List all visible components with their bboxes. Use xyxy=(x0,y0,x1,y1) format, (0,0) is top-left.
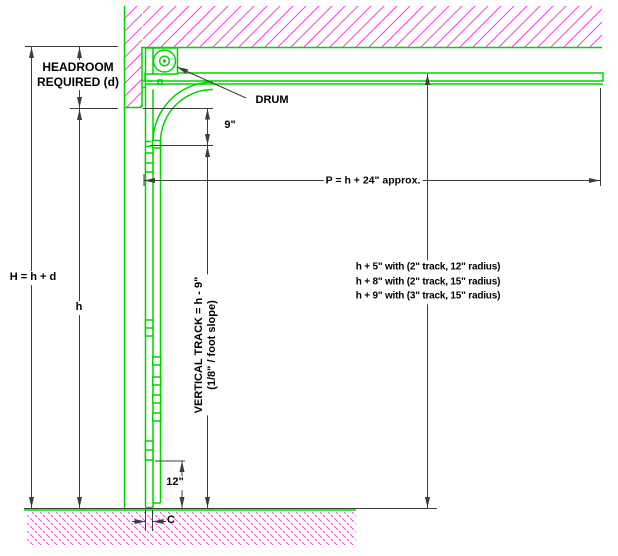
drum-detail-bolt xyxy=(158,80,162,84)
dim-arrow xyxy=(589,178,600,183)
drum-leader-line xyxy=(177,67,246,98)
drum-bracket xyxy=(146,48,178,74)
header-wall-hatch xyxy=(125,6,142,107)
total-height-label: H = h + d xyxy=(8,271,58,285)
dim-arrow xyxy=(29,47,34,58)
track-roller xyxy=(153,357,161,365)
track-roller xyxy=(153,413,161,421)
track-height-note-1: h + 5" with (2" track, 12" radius) xyxy=(356,260,500,275)
dim-arrow xyxy=(29,497,34,508)
floor-hatch xyxy=(26,512,356,545)
side-clearance-label: C xyxy=(165,514,177,528)
dim-arrow xyxy=(77,109,82,120)
track-roller xyxy=(153,395,161,403)
drum-label: DRUM xyxy=(254,94,291,108)
dim-arrow xyxy=(205,134,210,145)
headroom-label-line1: HEADROOM xyxy=(37,60,119,75)
track-height-note-3: h + 9" with (3" track, 15" radius) xyxy=(356,289,500,304)
track-height-notes: h + 5" with (2" track, 12" radius) h + 8… xyxy=(354,260,502,304)
vertical-track-label: VERTICAL TRACK = h - 9" (1/8" / foot slo… xyxy=(193,275,219,416)
dim-arrow xyxy=(180,461,185,472)
ceiling-hatch xyxy=(143,6,602,47)
dim-arrow xyxy=(205,146,210,157)
radius-height-label: 9" xyxy=(222,119,237,133)
dim-arrow xyxy=(205,497,210,508)
opening-height-label: h xyxy=(74,301,85,315)
bottom-roller-height-label: 12" xyxy=(164,476,185,490)
drum-hub xyxy=(163,59,166,62)
vertical-track-label-line1: VERTICAL TRACK = h - 9" xyxy=(193,277,206,414)
dim-arrow xyxy=(77,47,82,58)
top-roller xyxy=(153,141,161,149)
door-headroom-diagram: HEADROOM REQUIRED (d) DRUM 9" P = h + 24… xyxy=(0,0,618,556)
vertical-track-label-line2: (1/8" / foot slope) xyxy=(206,277,219,414)
curved-track-outer xyxy=(153,82,213,142)
horizontal-track xyxy=(145,73,603,81)
dim-arrow xyxy=(205,109,210,120)
dim-arrow xyxy=(180,497,185,508)
headroom-label: HEADROOM REQUIRED (d) xyxy=(35,60,121,90)
track-height-note-2: h + 8" with (2" track, 15" radius) xyxy=(356,275,500,290)
headroom-label-line2: REQUIRED (d) xyxy=(37,75,119,90)
dim-arrow xyxy=(77,97,82,108)
dim-arrow xyxy=(425,497,430,508)
dim-arrow xyxy=(77,497,82,508)
track-roller xyxy=(153,377,161,385)
floor-structure xyxy=(24,510,356,545)
dimension-lines xyxy=(24,47,601,532)
horizontal-track-projection-label: P = h + 24" approx. xyxy=(324,174,423,187)
